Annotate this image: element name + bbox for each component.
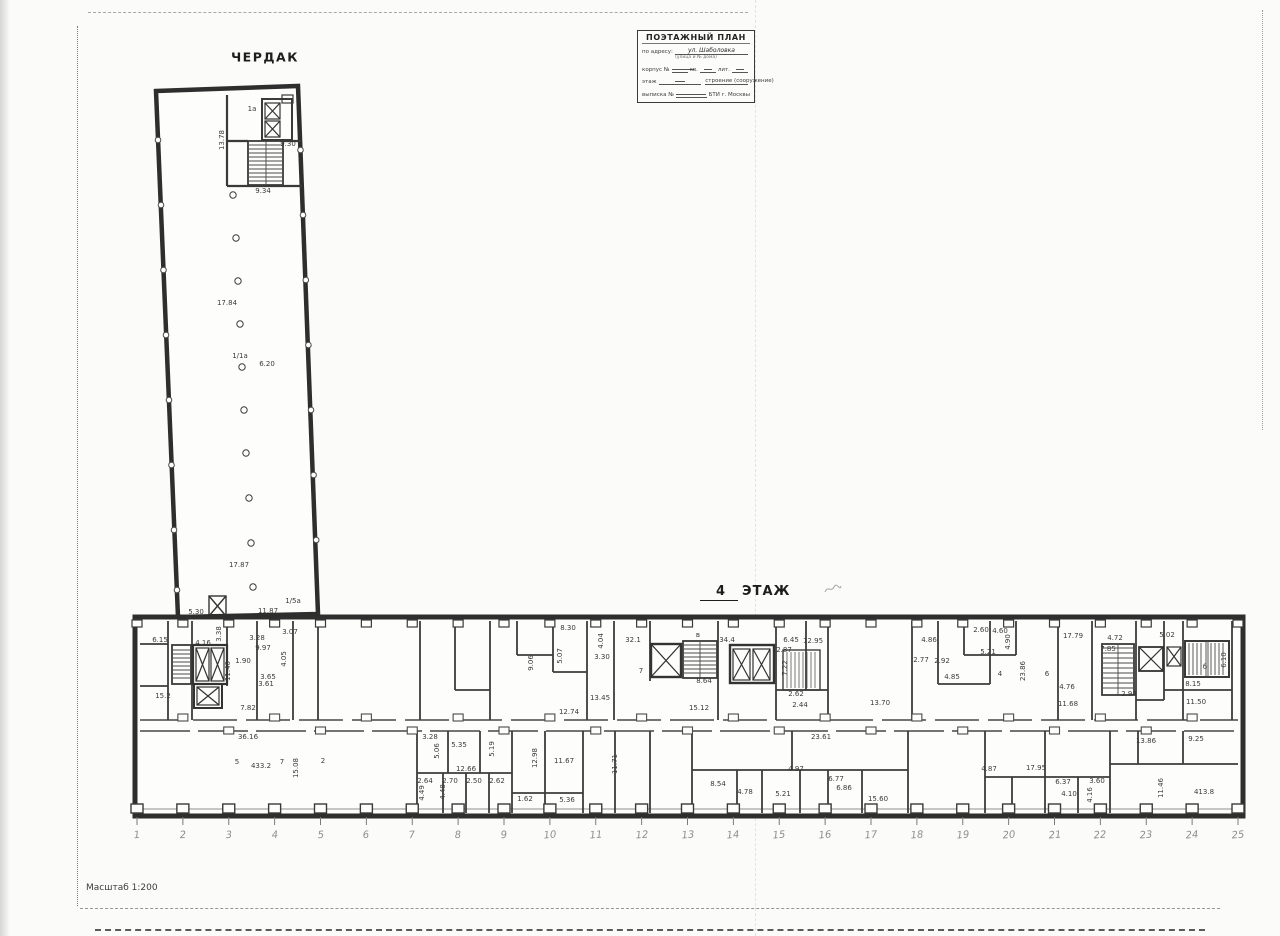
grid-mark: [912, 620, 922, 627]
grid-mark: [315, 804, 327, 813]
dimension-label: 6.20: [259, 360, 275, 368]
grid-mark: [1003, 804, 1015, 813]
dimension-label: 1/5а: [285, 597, 301, 605]
dimension-label: 11.40: [224, 661, 232, 681]
dimension-label: 12.66: [456, 765, 476, 773]
grid-mark: [1232, 804, 1244, 813]
grid-mark: [1187, 620, 1197, 627]
grid-mark: [1050, 620, 1060, 627]
dimension-label: 3.30: [594, 653, 610, 661]
dimension-label: 6: [1045, 670, 1049, 678]
grid-mark: [224, 727, 234, 734]
grid-mark: [1095, 714, 1105, 721]
grid-number: 1: [133, 830, 140, 842]
grid-mark: [1095, 620, 1105, 627]
grid-mark: [865, 804, 877, 813]
grid-number: 11: [589, 829, 603, 841]
grid-number: 19: [956, 829, 970, 841]
dimension-label: 7.85: [1100, 645, 1116, 653]
grid-mark: [1186, 804, 1198, 813]
dimension-label: 11.68: [1058, 700, 1078, 708]
grid-mark: [774, 620, 784, 627]
grid-number: 5: [317, 830, 324, 842]
grid-mark: [270, 714, 280, 721]
dimension-label: 15.2: [155, 692, 171, 700]
dimension-label: 2.77: [913, 656, 929, 664]
grid-mark: [1187, 714, 1197, 721]
grid-mark: [178, 620, 188, 627]
dimension-label: 2.50: [466, 777, 482, 785]
grid-mark: [866, 727, 876, 734]
dimension-label: 4.16: [195, 639, 211, 647]
dimension-label: в: [696, 631, 700, 639]
dimension-label: 13.78: [218, 130, 226, 150]
grid-mark: [499, 727, 509, 734]
dimension-label: 6.77: [828, 775, 844, 783]
grid-number: 24: [1185, 829, 1199, 841]
dimension-label: 8.54: [710, 780, 726, 788]
grid-mark: [727, 804, 739, 813]
dimension-label: 413.8: [1194, 788, 1214, 796]
grid-mark: [499, 620, 509, 627]
dimension-label: 7: [280, 758, 284, 766]
dimension-label: 3.28: [422, 733, 438, 741]
dimension-label: 4.16: [1086, 787, 1094, 803]
grid-mark: [453, 714, 463, 721]
dimension-label: 3.38: [215, 626, 223, 642]
grid-number: 12: [635, 829, 649, 841]
dimension-label: 9.30: [280, 140, 296, 148]
grid-mark: [177, 804, 189, 813]
grid-mark: [544, 804, 556, 813]
grid-mark: [912, 714, 922, 721]
grid-mark: [1140, 804, 1152, 813]
grid-number: 17: [864, 829, 878, 841]
grid-mark: [269, 804, 281, 813]
grid-mark: [270, 620, 280, 627]
dimension-label: 4.49: [418, 785, 426, 801]
grid-mark: [498, 804, 510, 813]
grid-number: 16: [818, 829, 832, 841]
main-floor-outline: [135, 617, 1243, 816]
grid-number: 9: [500, 830, 507, 842]
dimension-label: 5.07: [556, 648, 564, 664]
grid-mark: [636, 804, 648, 813]
dimension-label: 1а: [248, 105, 257, 113]
grid-mark: [820, 714, 830, 721]
grid-mark: [958, 620, 968, 627]
grid-number: 23: [1139, 829, 1153, 841]
dimension-label: 17.87: [229, 561, 249, 569]
grid-mark: [407, 727, 417, 734]
dimension-label: 2.92: [934, 657, 950, 665]
grid-mark: [590, 804, 602, 813]
grid-mark: [591, 727, 601, 734]
grid-mark: [360, 804, 372, 813]
grid-mark: [958, 727, 968, 734]
dimension-label: 2.64: [417, 777, 433, 785]
dimension-label: 5.21: [775, 790, 791, 798]
grid-mark: [820, 620, 830, 627]
dimension-label: 23.86: [1019, 661, 1027, 681]
dimension-label: 5.21: [980, 648, 996, 656]
dimension-label: 12.98: [531, 748, 539, 768]
dimension-label: 1.62: [517, 795, 533, 803]
dimension-label: 2: [321, 757, 325, 765]
dimension-label: 17.79: [1063, 632, 1083, 640]
dimension-label: 8.30: [560, 624, 576, 632]
grid-mark: [407, 620, 417, 627]
dimension-label: 36.16: [238, 733, 258, 741]
grid-mark: [1049, 804, 1061, 813]
dimension-label: 11.71: [611, 754, 619, 774]
dimension-label: 2.62: [788, 690, 804, 698]
grid-mark: [545, 714, 555, 721]
dimension-label: 4: [998, 670, 1002, 678]
grid-mark: [637, 714, 647, 721]
dimension-label: 4.05: [280, 651, 288, 667]
dimension-label: 2.94: [1121, 690, 1137, 698]
dimension-label: 6.10: [1220, 652, 1228, 668]
scanned-floor-plan-page: ПОЭТАЖНЫЙ ПЛАН по адресу: ул. Шаболовка …: [0, 0, 1280, 936]
grid-number: 8: [454, 830, 461, 842]
grid-mark: [774, 727, 784, 734]
dimension-label: 6.37: [1055, 778, 1071, 786]
dimension-label: 9.06: [527, 655, 535, 671]
grid-mark: [683, 727, 693, 734]
grid-mark: [637, 620, 647, 627]
grid-number: 7: [409, 830, 416, 842]
dimension-label: 433.2: [251, 762, 271, 770]
dimension-label: 11.67: [554, 757, 574, 765]
grid-mark: [132, 620, 142, 627]
grid-mark: [224, 620, 234, 627]
grid-number: 4: [271, 830, 278, 842]
dimension-label: 4.72: [1107, 634, 1123, 642]
grid-mark: [1004, 714, 1014, 721]
dimension-label: 3.61: [258, 680, 274, 688]
dimension-label: 5.36: [559, 796, 575, 804]
grid-mark: [316, 620, 326, 627]
dimension-label: 4.48: [439, 784, 447, 800]
dimension-label: 2.44: [792, 701, 808, 709]
dimension-label: 13.70: [870, 699, 890, 707]
dimension-label: 9.97: [255, 644, 271, 652]
grid-mark: [131, 804, 143, 813]
dimension-label: 5.30: [188, 608, 204, 616]
dimension-label: 7.22: [781, 660, 789, 676]
grid-number: 13: [681, 829, 695, 841]
grid-number: 15: [772, 829, 786, 841]
grid-number: 18: [910, 829, 924, 841]
dimension-label: 15.08: [292, 758, 300, 778]
dimension-label: 2.87: [776, 646, 792, 654]
dimension-label: 11.87: [258, 607, 278, 615]
dimension-label: 34.4: [719, 636, 735, 644]
dimension-label: 4.04: [597, 633, 605, 649]
grid-mark: [911, 804, 923, 813]
dimension-label: 6.86: [836, 784, 852, 792]
grid-mark: [591, 620, 601, 627]
dimension-label: 2.60: [973, 626, 989, 634]
dimension-label: 3.28: [249, 634, 265, 642]
dimension-label: 7.82: [240, 704, 256, 712]
grid-number: 3: [225, 830, 232, 842]
dimension-label: 1.90: [235, 657, 251, 665]
dimension-label: 2.62: [489, 777, 505, 785]
grid-mark: [452, 804, 464, 813]
dimension-label: 32.1: [625, 636, 641, 644]
dimension-label: 17.95: [1026, 764, 1046, 772]
grid-mark: [1004, 620, 1014, 627]
dimension-label: 5.19: [488, 741, 496, 757]
grid-mark: [683, 620, 693, 627]
dimension-label: 5: [235, 758, 239, 766]
dimension-label: 12.74: [559, 708, 579, 716]
dimension-label: 13.86: [1136, 737, 1156, 745]
grid-mark: [819, 804, 831, 813]
grid-number: 22: [1094, 829, 1108, 841]
grid-mark: [866, 620, 876, 627]
dimension-label: 8.15: [1185, 680, 1201, 688]
dimension-label: 4.76: [1059, 683, 1075, 691]
grid-number: 21: [1048, 829, 1062, 841]
grid-mark: [728, 620, 738, 627]
dimension-label: 9.34: [255, 187, 271, 195]
grid-mark: [1094, 804, 1106, 813]
dimension-label: 3.07: [282, 628, 298, 636]
grid-mark: [406, 804, 418, 813]
dimension-label: 5.35: [451, 741, 467, 749]
dimension-label: 4.10: [1061, 790, 1077, 798]
grid-mark: [957, 804, 969, 813]
dimension-label: 15.60: [868, 795, 888, 803]
dimension-label: 23.61: [811, 733, 831, 741]
dimension-label: б: [1203, 663, 1207, 671]
dimension-label: 11.46: [1157, 778, 1165, 798]
dimension-label: 5.02: [1159, 631, 1175, 639]
grid-mark: [545, 620, 555, 627]
dimension-label: 15.12: [689, 704, 709, 712]
grid-number: 10: [543, 829, 557, 841]
dimension-label: 9.25: [1188, 735, 1204, 743]
dimension-label: 5.06: [433, 743, 441, 759]
dimension-label: 4.87: [981, 765, 997, 773]
grid-mark: [728, 714, 738, 721]
grid-mark: [178, 714, 188, 721]
dimension-label: 4.90: [1004, 634, 1012, 650]
grid-number: 14: [727, 829, 741, 841]
grid-mark: [453, 620, 463, 627]
grid-number: 25: [1231, 829, 1245, 841]
grid-mark: [1050, 727, 1060, 734]
grid-number: 6: [363, 830, 370, 842]
grid-number: 2: [179, 830, 186, 842]
dimension-label: 13.45: [590, 694, 610, 702]
grid-mark: [361, 620, 371, 627]
dimension-label: 11.50: [1186, 698, 1206, 706]
dimension-label: 6.45: [783, 636, 799, 644]
dimension-label: 3.60: [1089, 777, 1105, 785]
grid-mark: [773, 804, 785, 813]
grid-mark: [682, 804, 694, 813]
dimension-label: 8.64: [696, 677, 712, 685]
dimension-label: 17.84: [217, 299, 237, 307]
dimension-label: 12.95: [803, 637, 823, 645]
dimension-label: 4.97: [788, 765, 804, 773]
grid-mark: [223, 804, 235, 813]
dimension-label: 6.15: [152, 636, 168, 644]
dimension-label: 4.86: [921, 636, 937, 644]
dimension-label: 4.85: [944, 673, 960, 681]
grid-mark: [316, 727, 326, 734]
grid-number: 20: [1002, 829, 1016, 841]
grid-mark: [1233, 620, 1243, 627]
grid-mark: [361, 714, 371, 721]
grid-mark: [1141, 620, 1151, 627]
grid-mark: [1141, 727, 1151, 734]
dimension-label: 7: [639, 667, 643, 675]
dimension-label: 4.78: [737, 788, 753, 796]
dimension-label: 1/1а: [232, 352, 248, 360]
